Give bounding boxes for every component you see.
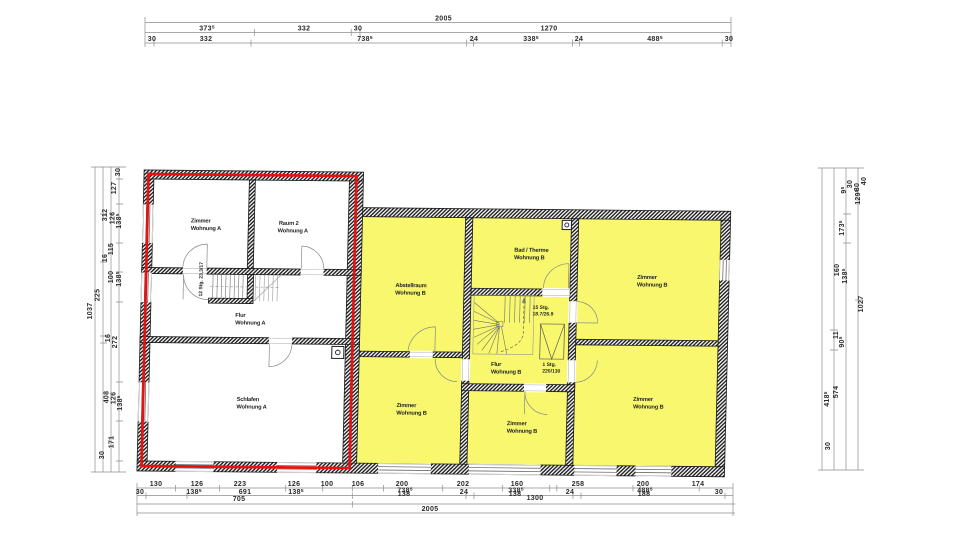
svg-text:Wohnung B: Wohnung B — [633, 404, 664, 410]
svg-text:332: 332 — [200, 36, 213, 43]
svg-text:Zimmer: Zimmer — [191, 218, 212, 224]
svg-text:258: 258 — [572, 481, 585, 488]
svg-text:24: 24 — [575, 36, 583, 43]
svg-text:24: 24 — [470, 36, 478, 43]
svg-text:127: 127 — [111, 182, 118, 195]
svg-text:Wohnung B: Wohnung B — [514, 255, 545, 261]
svg-text:1300: 1300 — [527, 495, 544, 502]
svg-text:574: 574 — [833, 386, 840, 399]
svg-text:Zimmer: Zimmer — [633, 397, 654, 403]
svg-text:115: 115 — [108, 243, 115, 255]
svg-text:202: 202 — [457, 481, 470, 488]
svg-text:106: 106 — [352, 481, 365, 488]
svg-text:138: 138 — [509, 491, 522, 498]
svg-text:30: 30 — [99, 451, 106, 459]
svg-text:16: 16 — [102, 254, 109, 262]
svg-text:160: 160 — [834, 264, 841, 277]
svg-text:30: 30 — [115, 168, 122, 176]
svg-text:30: 30 — [148, 36, 156, 43]
svg-text:1037: 1037 — [87, 303, 94, 320]
svg-text:171: 171 — [109, 436, 116, 449]
svg-text:1 Stg.: 1 Stg. — [542, 362, 556, 368]
svg-text:100: 100 — [321, 481, 334, 488]
svg-text:Wohnung A: Wohnung A — [278, 228, 308, 234]
svg-text:Abstellraum: Abstellraum — [395, 283, 426, 289]
svg-text:30: 30 — [715, 489, 723, 496]
svg-text:138: 138 — [398, 491, 411, 498]
svg-text:691: 691 — [239, 489, 252, 496]
svg-text:Wohnung B: Wohnung B — [507, 429, 538, 435]
svg-text:Flur: Flur — [235, 313, 246, 319]
svg-text:30: 30 — [725, 36, 733, 43]
svg-text:408: 408 — [104, 391, 111, 404]
svg-text:Wohnung B: Wohnung B — [395, 290, 426, 296]
svg-text:Wohnung A: Wohnung A — [235, 320, 265, 326]
svg-text:312: 312 — [102, 209, 109, 222]
svg-text:Wohnung B: Wohnung B — [491, 369, 522, 375]
svg-text:40: 40 — [861, 177, 868, 185]
svg-text:126: 126 — [288, 481, 301, 488]
svg-text:2005: 2005 — [435, 16, 452, 23]
svg-text:Schlafen: Schlafen — [237, 397, 260, 403]
svg-text:332: 332 — [298, 26, 311, 33]
svg-text:Zimmer: Zimmer — [637, 275, 658, 281]
svg-text:Wohnung A: Wohnung A — [236, 404, 266, 410]
svg-text:220/130: 220/130 — [542, 368, 560, 374]
svg-text:1027: 1027 — [858, 296, 865, 313]
svg-text:Raum 2: Raum 2 — [279, 221, 299, 227]
svg-text:272: 272 — [112, 336, 119, 349]
svg-text:18.7/26.9: 18.7/26.9 — [532, 311, 553, 317]
svg-text:12 Stg. 23,3/17: 12 Stg. 23,3/17 — [198, 262, 205, 297]
svg-text:24: 24 — [460, 489, 468, 496]
svg-text:Wohnung B: Wohnung B — [396, 411, 427, 417]
svg-text:Wohnung A: Wohnung A — [191, 226, 221, 232]
svg-text:2005: 2005 — [422, 506, 439, 513]
svg-text:16: 16 — [105, 334, 112, 342]
svg-text:Zimmer: Zimmer — [396, 403, 417, 409]
svg-text:30: 30 — [136, 489, 144, 496]
svg-text:30: 30 — [354, 26, 362, 33]
svg-text:126: 126 — [191, 481, 204, 488]
svg-text:30: 30 — [825, 442, 832, 450]
svg-text:Bad / Therme: Bad / Therme — [514, 248, 548, 254]
svg-text:705: 705 — [233, 496, 246, 503]
svg-text:24: 24 — [566, 489, 574, 496]
svg-text:130: 130 — [150, 481, 163, 488]
svg-text:Flur: Flur — [491, 362, 502, 368]
svg-text:223: 223 — [234, 481, 247, 488]
svg-text:Wohnung B: Wohnung B — [637, 282, 668, 288]
svg-text:225: 225 — [95, 289, 102, 302]
svg-text:188: 188 — [638, 491, 651, 498]
svg-text:30: 30 — [847, 180, 854, 188]
svg-text:174: 174 — [692, 481, 705, 488]
svg-text:15 Stg.: 15 Stg. — [533, 305, 550, 311]
svg-text:1270: 1270 — [541, 26, 558, 33]
svg-text:Zimmer: Zimmer — [507, 421, 528, 427]
svg-text:100: 100 — [108, 271, 115, 284]
